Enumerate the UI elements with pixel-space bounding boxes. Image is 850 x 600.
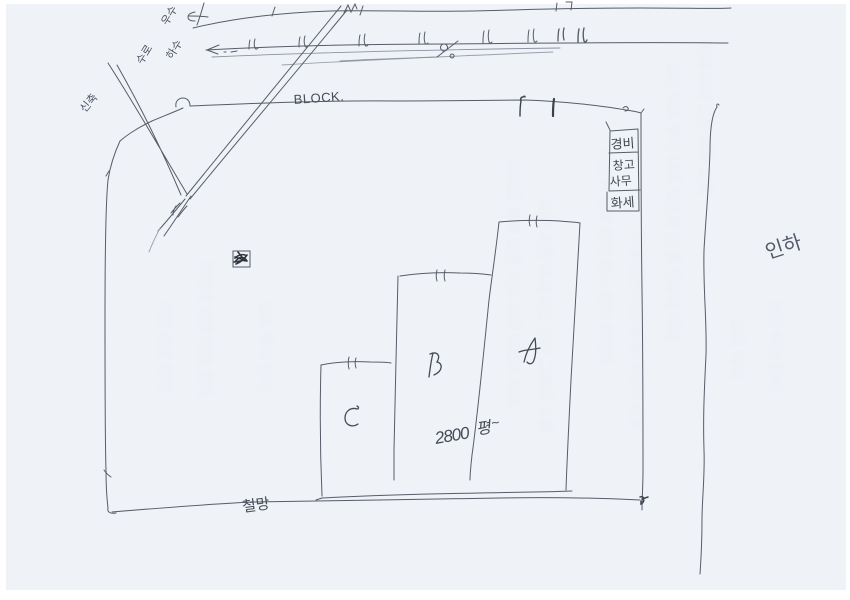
svg-text:보관 하던 중에: 보관 하던 중에 [766,300,783,391]
svg-text:하게 되어 있는 사항 으로: 하게 되어 있는 사항 으로 [696,40,714,195]
svg-text:로므로 하여 보관 서브 지내 므로부 터의: 로므로 하여 보관 서브 지내 므로부 터의 [504,160,522,406]
svg-text:화세: 화세 [610,194,635,211]
svg-text:부지내 보관 하던 중에: 부지내 보관 하던 중에 [196,260,213,397]
svg-text:창고: 창고 [612,157,635,173]
svg-text:사무: 사무 [609,173,632,189]
svg-text:으로 하여 금지: 으로 하여 금지 [256,300,273,391]
svg-text:으로 하여: 으로 하여 [728,320,745,379]
svg-text:그러 므로 부지 내에 보관하 던 중 일부에 대하: 그러 므로 부지 내에 보관하 던 중 일부에 대하 [664,60,681,342]
svg-text:경비: 경비 [610,135,635,152]
svg-text:보내 즈음 하게 되었 는데 그때의 상황: 보내 즈음 하게 되었 는데 그때의 상황 [536,200,554,432]
svg-text:사항 으로 하여: 사항 으로 하여 [156,300,173,391]
